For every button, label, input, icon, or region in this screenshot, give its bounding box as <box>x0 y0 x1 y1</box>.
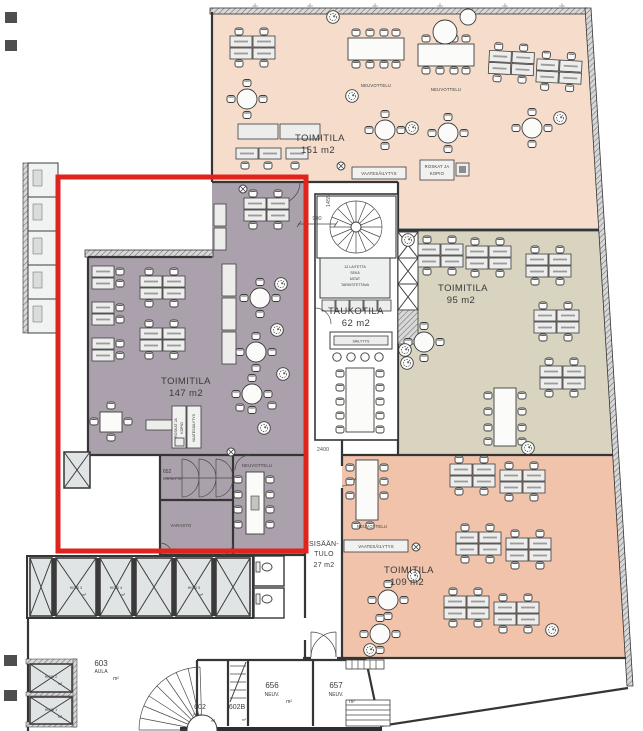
plant-icon <box>402 234 415 247</box>
svg-text:m²: m² <box>286 699 292 705</box>
floor-plan-drawing: 12 LAITETTA SEKÄ MITAT TARKISTETTAVA SÄI… <box>0 0 643 731</box>
label-602-name: PRH <box>193 713 201 717</box>
note-line2: SEKÄ <box>350 271 360 275</box>
column-icon <box>239 185 247 193</box>
cabinet <box>214 204 226 226</box>
hissi5-label: HISSI 5 <box>188 586 200 590</box>
plant-icon <box>406 122 419 135</box>
hissi4-label: HISSI 4 <box>110 586 122 590</box>
label-toimitila-147: TOIMITILA <box>161 376 211 387</box>
hissi2-label: HISSI 2 <box>45 675 57 679</box>
hissi3-label: HISSI 3 <box>70 586 82 590</box>
svg-text:m²: m² <box>113 676 119 682</box>
label-656-name: NEUV. <box>265 692 280 698</box>
cabinet <box>238 124 278 139</box>
label-652-name: RISTIKYTK. <box>163 477 183 481</box>
plant-icon <box>327 11 340 24</box>
coat-storage-label: VAATESÄILYTYS <box>192 413 196 442</box>
plant-icon <box>401 357 414 370</box>
note-room: 12 LAITETTA SEKÄ MITAT TARKISTETTAVA <box>320 258 390 298</box>
stool <box>361 353 369 361</box>
stool <box>333 353 341 361</box>
label-602b: 602B <box>229 704 246 711</box>
plant-icon <box>522 442 535 455</box>
label-602: 602 <box>194 704 206 711</box>
label-area-sisaantulo: 27 m2 <box>314 562 335 569</box>
column-icon <box>412 543 420 551</box>
plant-icon <box>546 624 559 637</box>
plant-icon <box>258 422 271 435</box>
stool <box>347 353 355 361</box>
label-toimitila-151: TOIMITILA <box>295 133 345 144</box>
column-icon <box>227 448 235 456</box>
dim-1455: 1455 <box>326 195 332 207</box>
label-neuvottelu: NEUVOTTELU <box>242 463 272 468</box>
plant-icon <box>364 644 377 657</box>
note-line4: TARKISTETTAVA <box>341 283 370 287</box>
label-603: 603 <box>94 659 108 668</box>
note-line1: 12 LAITETTA <box>344 265 366 269</box>
hissi1-label: HISSI 1 <box>45 708 57 712</box>
entrance-door-arc <box>311 632 336 657</box>
desk <box>236 148 258 159</box>
label-sisaantulo-1: SISÄÄN- <box>309 540 339 548</box>
label-area-151: 151 m2 <box>301 145 335 156</box>
plant-icon <box>399 344 412 357</box>
plant-icon <box>554 112 567 125</box>
label-neuvottelu: NEUVOTTELU <box>357 524 387 529</box>
stair-602b <box>230 662 246 702</box>
label-652: 652 <box>163 469 172 475</box>
waste-copy-label1: ROSKAT JA <box>425 164 450 169</box>
label-neuvottelu: NEUVOTTELU <box>431 87 461 92</box>
note-line3: MITAT <box>350 277 361 281</box>
round-table <box>460 9 476 25</box>
kitchen-counter: SÄILYTYS <box>330 332 392 361</box>
label-sisaantulo-2: TULO <box>314 551 334 558</box>
round-table <box>433 20 457 44</box>
plant-icon <box>277 368 290 381</box>
cabinet <box>214 228 226 250</box>
label-area-95: 95 m2 <box>447 295 475 306</box>
plant-icon <box>346 90 359 103</box>
service-wing <box>28 163 58 333</box>
wall-west-wing <box>23 163 28 333</box>
label-603-name: AULA <box>94 669 108 675</box>
wall-north <box>210 8 587 14</box>
desk <box>259 148 281 159</box>
coat-storage-box: VAATESÄILYTYS <box>344 540 408 552</box>
cabinet <box>222 332 236 364</box>
stool <box>375 353 383 361</box>
taukotila-room: 12 LAITETTA SEKÄ MITAT TARKISTETTAVA SÄI… <box>315 194 398 440</box>
aula-block: HISSI 2 m² HISSI 1 m² <box>26 659 217 731</box>
label-area-109: 109 m2 <box>390 577 424 588</box>
waste-copy-label1: ROSKAT JA <box>174 418 178 438</box>
wc-block <box>254 556 284 618</box>
printer-icon <box>175 438 184 446</box>
elevator-block: HISSI 3 m² HISSI 4 m² HISSI 5 m² <box>27 556 253 618</box>
plant-icon <box>275 278 288 291</box>
spiral-staircase <box>139 667 217 731</box>
cabinet <box>222 264 236 296</box>
toilet-icon <box>256 562 272 572</box>
label-657: 657 <box>329 681 343 690</box>
label-toimitila-95: TOIMITILA <box>438 283 488 294</box>
cabinet <box>146 420 172 430</box>
counter-label: SÄILYTYS <box>353 340 371 344</box>
plant-icon <box>271 324 284 337</box>
coat-storage-label: VAATESÄILYTYS <box>361 171 396 176</box>
label-area-taukotila: 62 m2 <box>342 318 370 329</box>
toilet-icon <box>256 594 272 604</box>
coat-storage-label: VAATESÄILYTYS <box>358 544 393 549</box>
entrance-door-arc <box>311 632 336 657</box>
label-657-name: NEUV. <box>329 692 344 698</box>
label-neuvottelu: NEUVOTTELU <box>361 83 391 88</box>
label-656: 656 <box>265 681 279 690</box>
dim-2400: 2400 <box>317 447 329 453</box>
coat-storage-box: VAATESÄILYTYS <box>352 167 406 179</box>
dim-900: 900 <box>312 216 321 222</box>
label-taukotila: TAUKOTILA <box>328 306 384 317</box>
label-toimitila-109: TOIMITILA <box>384 565 434 576</box>
waste-copy-label2: KOPIO <box>430 171 445 176</box>
floor-plan: 12 LAITETTA SEKÄ MITAT TARKISTETTAVA SÄI… <box>0 0 643 731</box>
cabinet <box>222 298 236 330</box>
svg-text:m²: m² <box>349 699 355 705</box>
label-varasto: VARASTO <box>170 523 192 528</box>
column-icon <box>337 162 345 170</box>
label-area-147: 147 m2 <box>169 388 203 399</box>
waste-copy-label2: KOPIO <box>180 422 184 434</box>
svg-text:m²: m² <box>242 718 247 722</box>
